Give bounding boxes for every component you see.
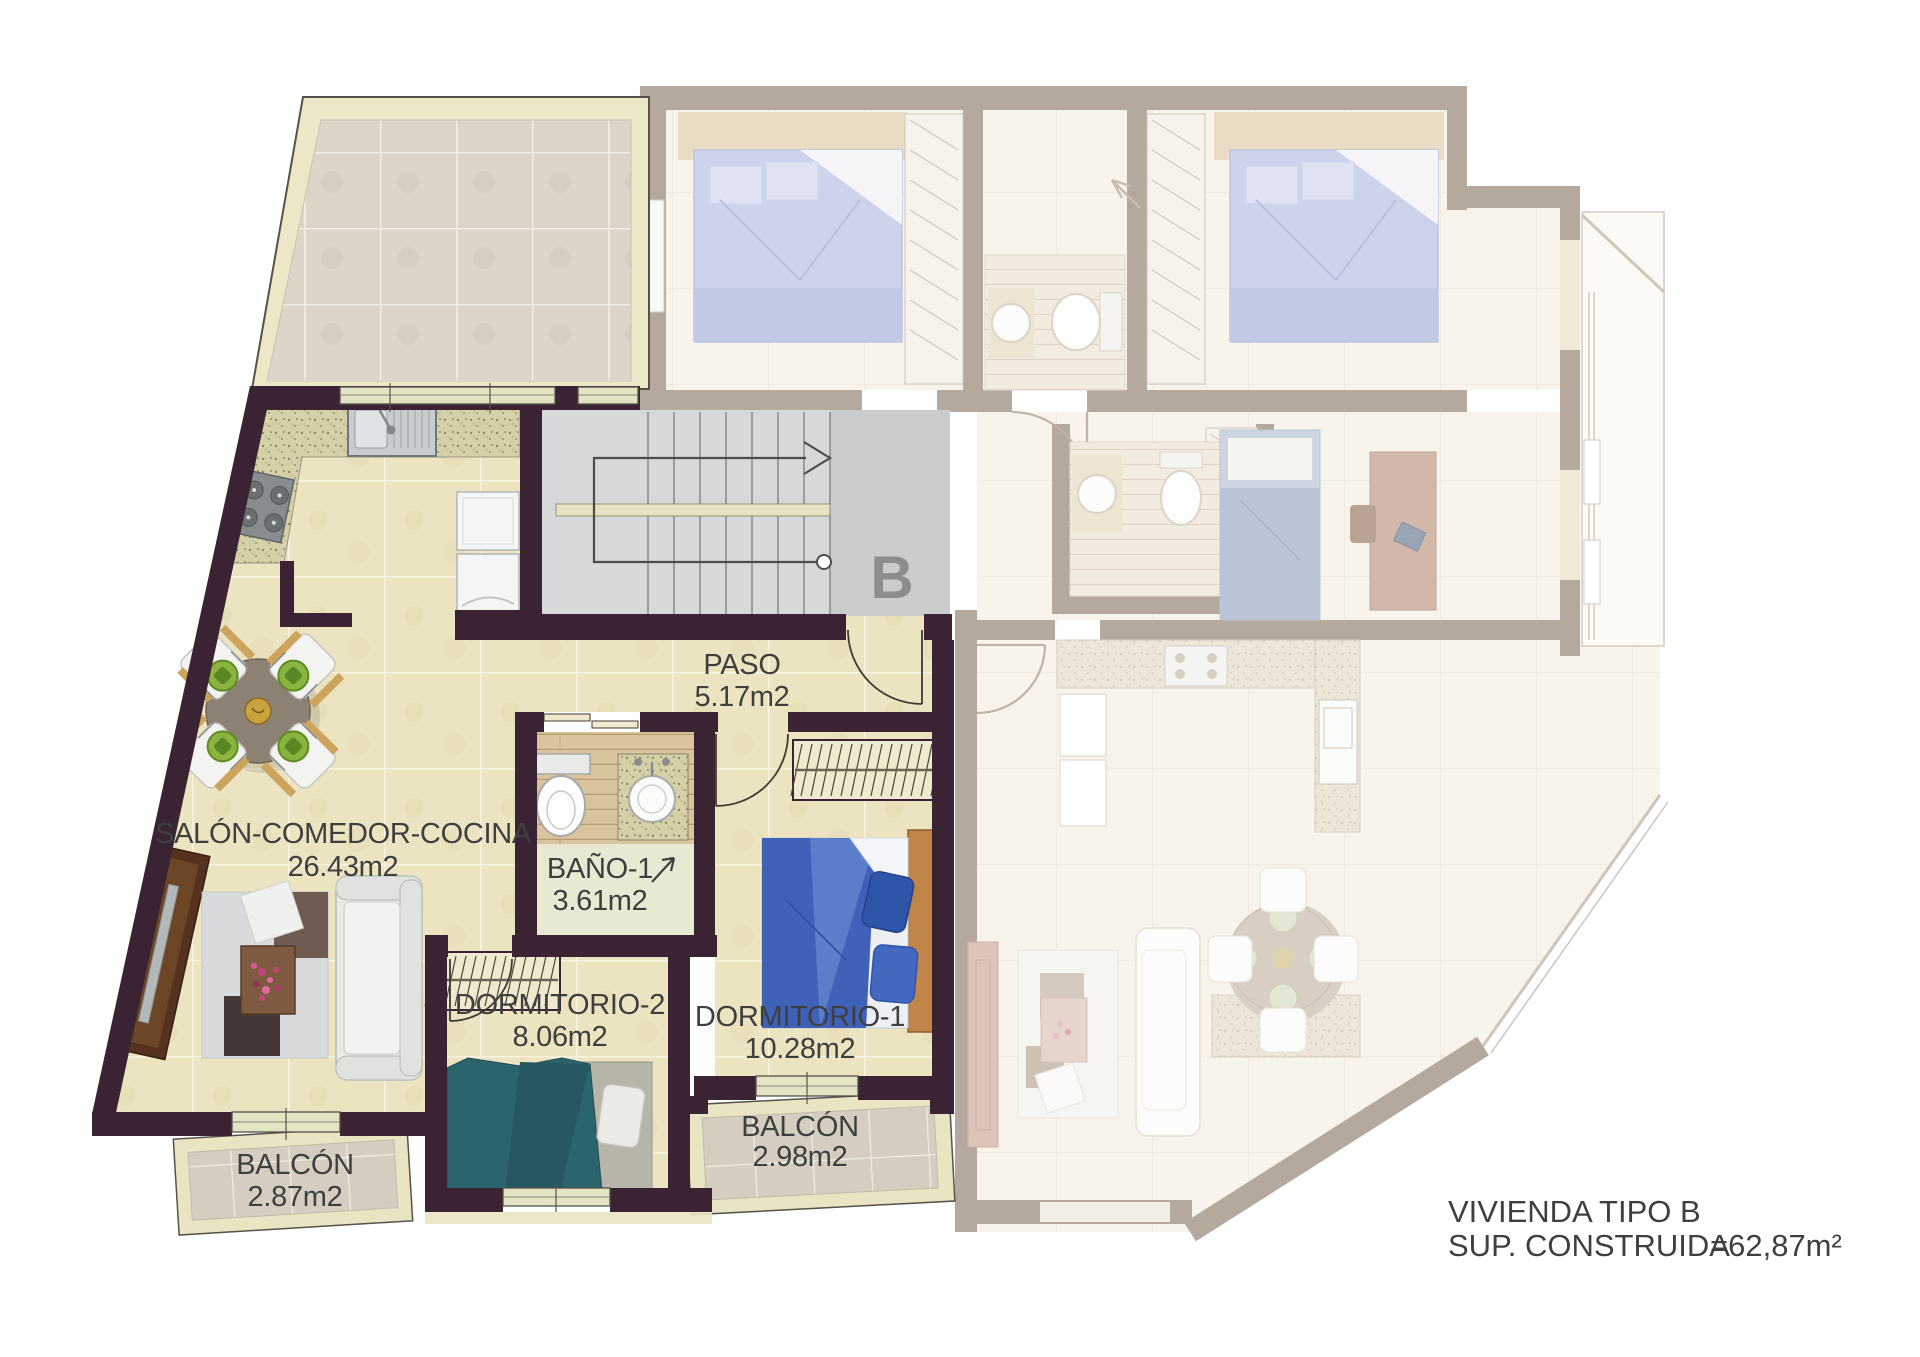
footer-annotation: VIVIENDA TIPO B SUP. CONSTRUIDA =62,87m²: [1448, 1194, 1842, 1263]
faded-balcony-window: [1584, 440, 1600, 504]
stair-handrail: [556, 504, 830, 516]
sofa: [336, 876, 422, 1080]
faded-bed-c: [1220, 430, 1320, 620]
label-paso-name: PASO: [703, 649, 780, 681]
footer-sup-label: SUP. CONSTRUIDA: [1448, 1228, 1730, 1263]
label-salon-name: SALÓN-COMEDOR-COCINA: [155, 817, 532, 850]
faded-bed-b: [1214, 112, 1444, 342]
label-bano-name: BAÑO-1: [547, 851, 653, 885]
label-paso-area: 5.17m2: [695, 681, 790, 713]
sliding-door: [592, 721, 638, 728]
footer-title: VIVIENDA TIPO B: [1448, 1194, 1701, 1229]
bed-headboard: [908, 830, 934, 1032]
faded-window: [1560, 240, 1580, 350]
fridge: [457, 492, 519, 550]
faded-window: [1560, 470, 1580, 580]
pillow: [596, 1083, 646, 1148]
label-balcon1-name: BALCÓN: [236, 1148, 353, 1181]
washbasin: [629, 776, 675, 822]
label-salon-area: 26.43m2: [288, 851, 399, 883]
stair-start-circle: [817, 555, 831, 569]
pillow: [870, 944, 919, 1004]
table-centerpiece: [245, 698, 271, 724]
label-dormitorio1-name: DORMITORIO-1: [695, 1001, 905, 1033]
kitchen-sink: [348, 402, 436, 456]
facade-sill: [425, 1212, 712, 1224]
sliding-door: [544, 714, 590, 721]
floor-plan-page: B: [0, 0, 1920, 1357]
floor-plan-svg: B: [0, 0, 1920, 1357]
terrace: [252, 97, 649, 389]
label-balcon1-area: 2.87m2: [248, 1181, 343, 1213]
wardrobe-dormitorio-1: [791, 740, 945, 800]
label-balcon2-area: 2.98m2: [753, 1141, 848, 1173]
footer-sup-value: =62,87m²: [1710, 1228, 1842, 1263]
faded-balcony-window: [1584, 540, 1600, 604]
washer: [457, 554, 519, 612]
stair-block-letter: B: [870, 544, 913, 611]
label-dormitorio2-area: 8.06m2: [513, 1021, 608, 1053]
rug: [202, 880, 328, 1058]
faded-bed-a: [678, 112, 908, 342]
apartment-type-b: B: [92, 383, 955, 1235]
label-dormitorio2-name: DORMITORIO-2: [455, 989, 665, 1021]
bed-dormitorio-2: [447, 1058, 652, 1192]
faded-window: [1040, 1202, 1170, 1222]
label-bano-area: 3.61m2: [553, 885, 648, 917]
faded-bedroom-b-ext-floor: [1447, 208, 1560, 390]
label-dormitorio1-area: 10.28m2: [745, 1033, 856, 1065]
stairwell: B: [542, 410, 950, 616]
terrace-tiles: [267, 120, 631, 381]
label-balcon2-name: BALCÓN: [741, 1110, 858, 1143]
